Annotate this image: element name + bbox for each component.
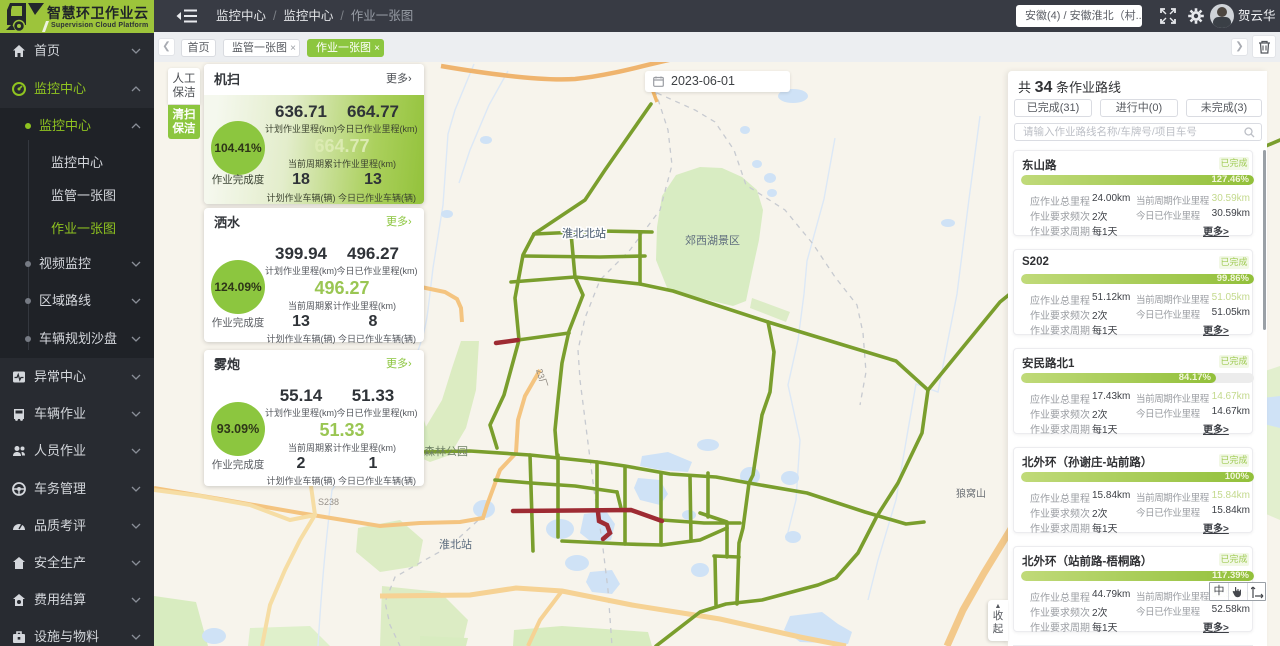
- svg-text:S238: S238: [318, 497, 339, 507]
- svg-text:淮北北站: 淮北北站: [562, 226, 606, 240]
- svg-text:郊西湖景区: 郊西湖景区: [685, 234, 740, 247]
- svg-text:淮北站: 淮北站: [439, 537, 472, 551]
- svg-text:狼窝山: 狼窝山: [956, 487, 986, 500]
